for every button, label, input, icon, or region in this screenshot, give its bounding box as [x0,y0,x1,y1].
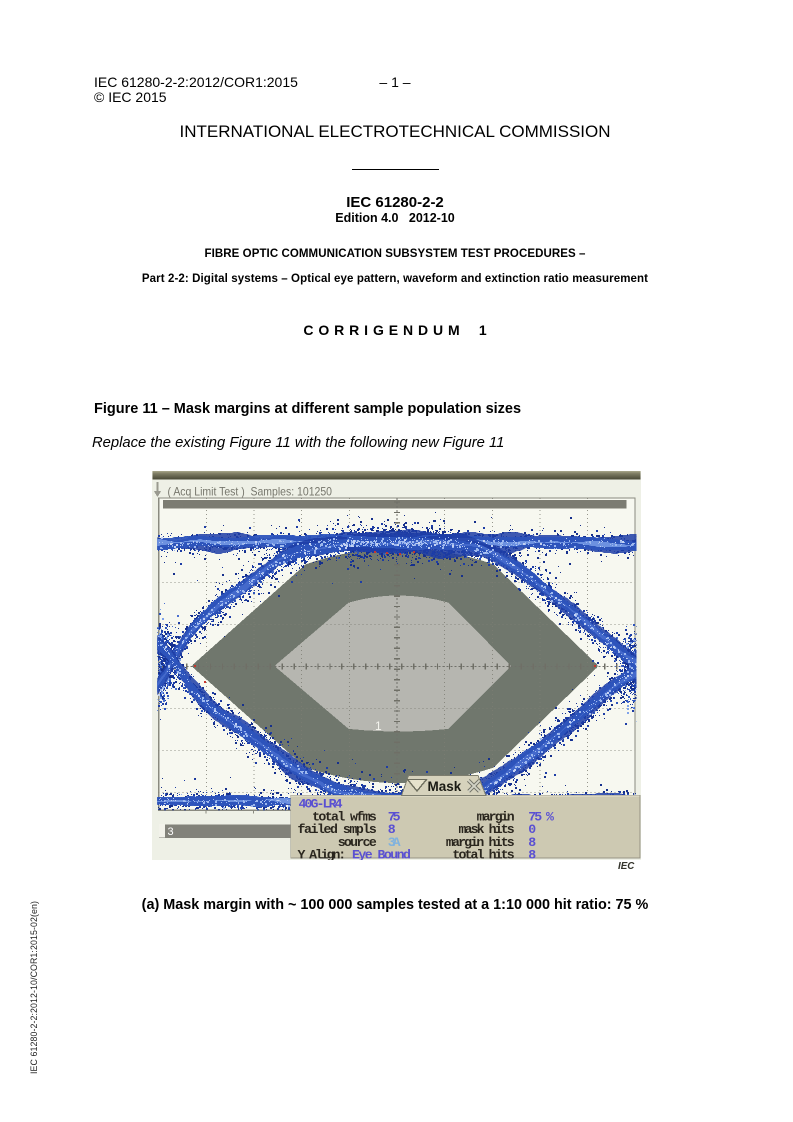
svg-text:Y Align:: Y Align: [298,847,347,860]
svg-text:1: 1 [375,719,382,733]
svg-text:( Acq Limit Test ) Samples: 1: ( Acq Limit Test ) Samples: 101250 [168,485,333,499]
svg-text:Mask: Mask [428,779,462,794]
svg-text:3: 3 [168,826,174,838]
svg-text:Eye Bound: Eye Bound [352,847,411,860]
svg-text:8: 8 [528,847,536,860]
svg-text:total hits: total hits [452,847,514,860]
